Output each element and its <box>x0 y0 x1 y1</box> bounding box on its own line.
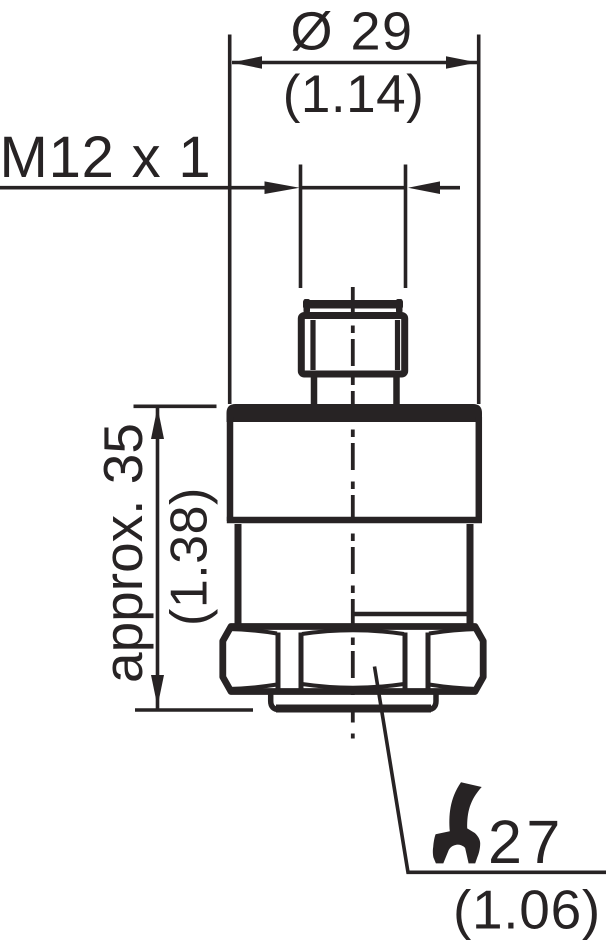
svg-text:M12 x 1: M12 x 1 <box>0 125 211 190</box>
svg-text:Ø 29: Ø 29 <box>290 2 413 62</box>
svg-text:27: 27 <box>488 808 565 876</box>
svg-text:(1.14): (1.14) <box>283 65 424 124</box>
svg-text:(1.06): (1.06) <box>453 879 601 940</box>
svg-text:(1.38): (1.38) <box>161 487 219 626</box>
svg-text:approx. 35: approx. 35 <box>92 423 154 683</box>
